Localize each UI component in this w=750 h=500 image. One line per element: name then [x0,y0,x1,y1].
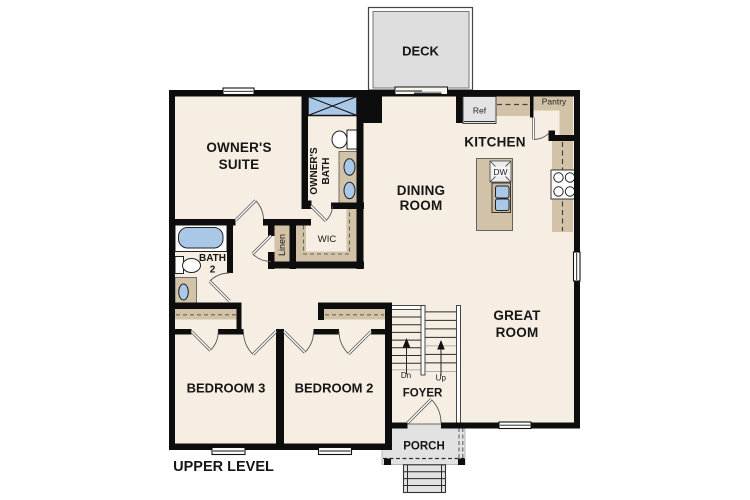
svg-text:DINING: DINING [397,183,445,198]
svg-text:OWNER'S: OWNER'S [309,147,320,195]
svg-text:2: 2 [210,265,216,276]
svg-text:BATH: BATH [199,253,226,264]
svg-text:ROOM: ROOM [496,325,539,340]
svg-text:KITCHEN: KITCHEN [464,135,525,150]
svg-text:PORCH: PORCH [403,441,445,453]
svg-text:BEDROOM 2: BEDROOM 2 [295,381,374,396]
svg-text:Pantry: Pantry [542,97,567,107]
svg-text:Ref: Ref [473,106,487,116]
svg-text:DW: DW [493,167,507,177]
svg-text:FOYER: FOYER [403,388,443,400]
svg-text:WIC: WIC [318,234,337,245]
svg-text:Dn: Dn [401,371,411,380]
svg-text:BATH: BATH [321,157,332,184]
svg-text:SUITE: SUITE [219,157,260,172]
svg-text:GREAT: GREAT [493,308,541,323]
svg-text:Linen: Linen [277,234,287,256]
svg-text:OWNER'S: OWNER'S [206,140,271,155]
svg-text:ROOM: ROOM [400,198,443,213]
svg-text:Up: Up [436,374,447,383]
svg-text:UPPER LEVEL: UPPER LEVEL [173,459,274,475]
svg-text:DECK: DECK [402,44,439,59]
svg-text:BEDROOM 3: BEDROOM 3 [187,381,266,396]
